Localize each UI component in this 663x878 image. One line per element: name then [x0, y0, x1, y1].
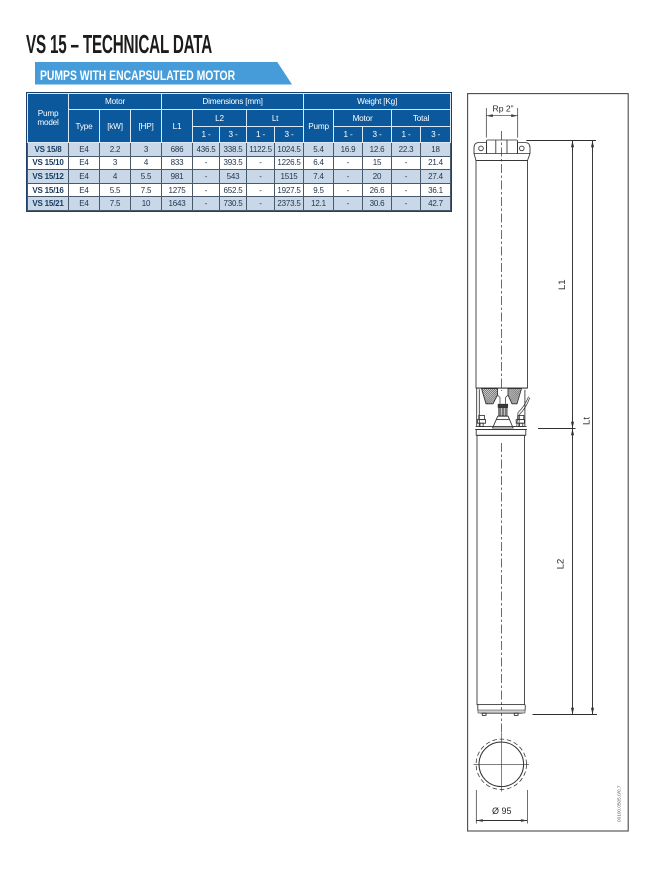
svg-text:Lt: Lt — [582, 417, 593, 425]
svg-text:Rp 2”: Rp 2” — [492, 104, 513, 114]
svg-text:Ø 95: Ø 95 — [492, 806, 512, 816]
svg-text:L2: L2 — [556, 559, 567, 570]
svg-text:L1: L1 — [557, 279, 568, 290]
svg-text:00100.0505.0/0.7: 00100.0505.0/0.7 — [617, 785, 622, 822]
